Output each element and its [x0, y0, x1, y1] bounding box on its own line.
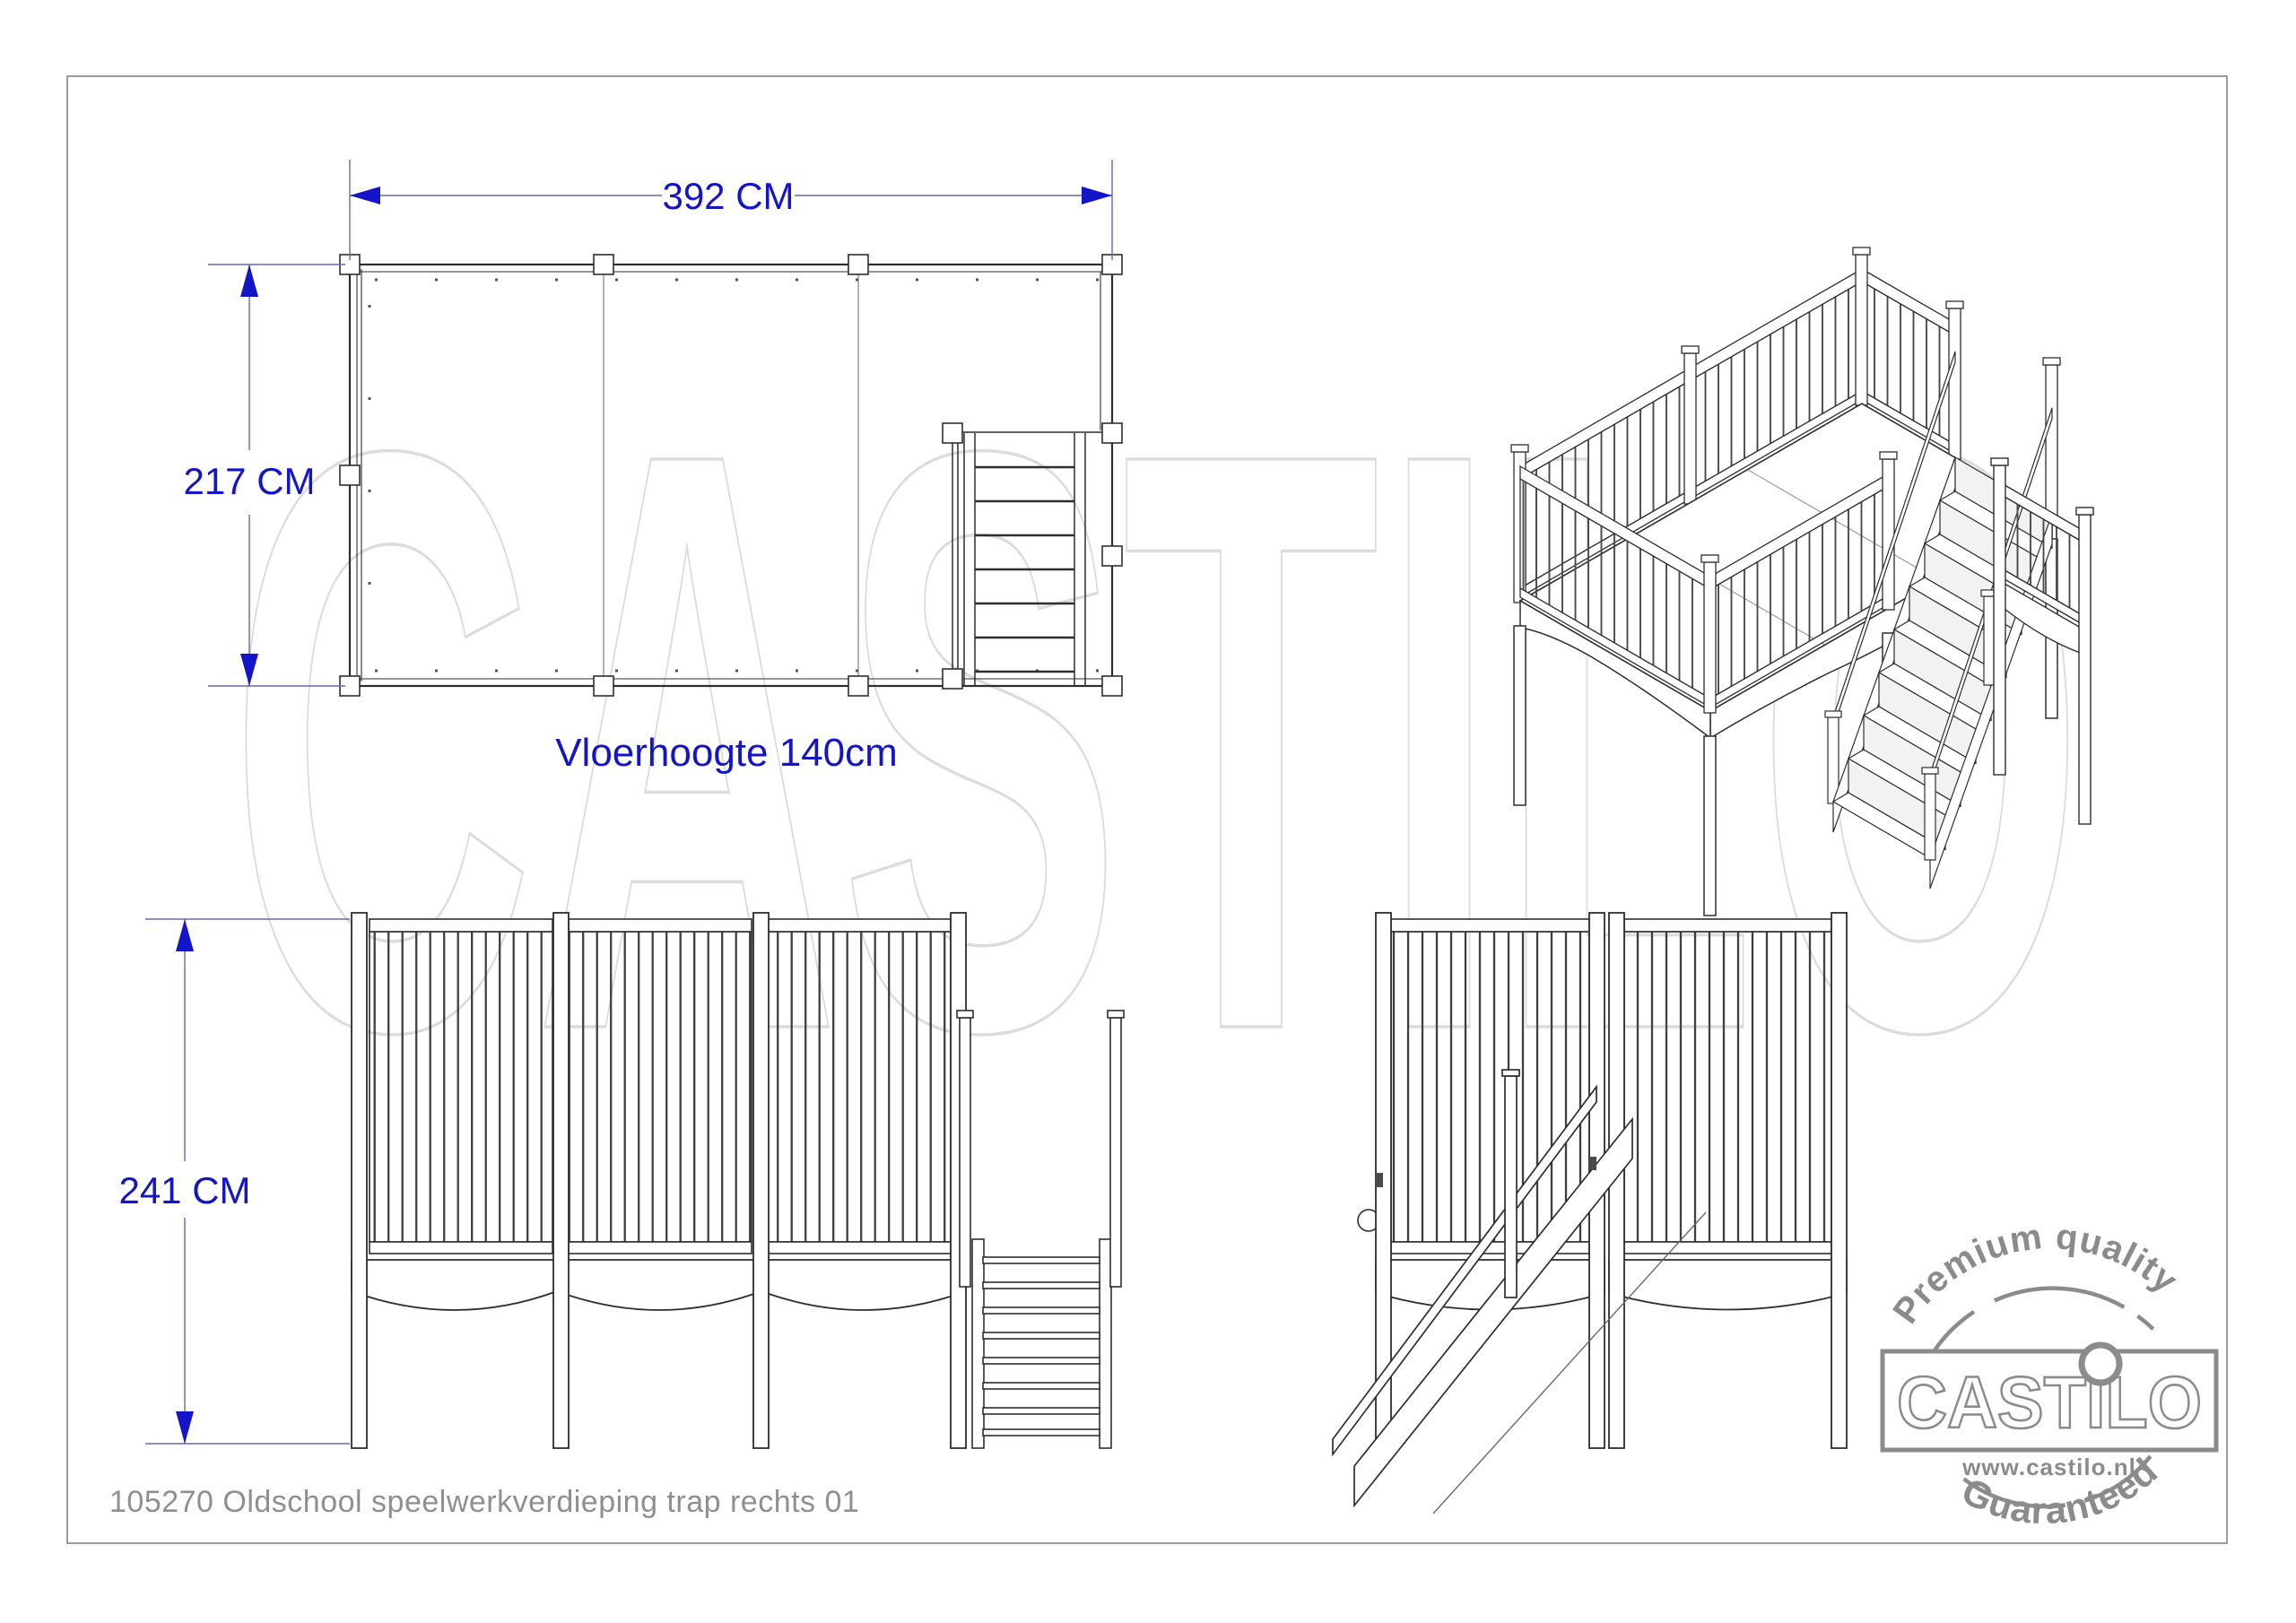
arrow-down-icon [176, 1411, 194, 1444]
plan-dim-width: 392 CM [350, 160, 1112, 260]
stamp-arc-top [1924, 1276, 2152, 1357]
front-elevation-view: 241 CM [90, 888, 1184, 1515]
floor-height-label: Vloerhoogte 140cm [555, 731, 898, 775]
logo-brand-text: CASTILO [1897, 1362, 2202, 1444]
plan-dim-width-label: 392 CM [662, 175, 794, 217]
arrow-down-icon [240, 654, 258, 686]
plan-screw-dots [370, 280, 1106, 671]
plan-dim-depth: 217 CM [183, 265, 345, 686]
front-stairs [957, 1011, 1124, 1448]
drawing-title: 105270 Oldschool speelwerkverdieping tra… [109, 1485, 859, 1520]
logo-url: www.castilo.nl [1961, 1454, 2136, 1480]
front-railing-panels [370, 919, 951, 1254]
isometric-view [1426, 152, 2170, 942]
front-fascia [352, 1260, 966, 1310]
front-dim-height: 241 CM [118, 919, 350, 1444]
plan-floor [350, 265, 1112, 686]
front-dim-height-label: 241 CM [118, 1169, 250, 1211]
side-elevation-view [1300, 888, 1910, 1515]
logo-premium-quality: Premium quality [1877, 1200, 2189, 1334]
plan-posts [340, 255, 1122, 696]
logo-i-dot [2082, 1345, 2119, 1383]
arrow-up-icon [176, 919, 194, 951]
castilo-logo: Premium quality Guaranteed CASTILO www.c… [1870, 1188, 2229, 1542]
plan-stairs [952, 432, 1110, 686]
arrow-left-icon [350, 187, 380, 204]
plan-view: 392 CM 217 CM Vloerhoogte 140cm [135, 135, 1157, 825]
drawing-sheet: CASTILO [0, 0, 2296, 1623]
plan-dim-depth-label: 217 CM [183, 460, 315, 502]
arrow-up-icon [240, 265, 258, 297]
arrow-right-icon [1082, 187, 1112, 204]
